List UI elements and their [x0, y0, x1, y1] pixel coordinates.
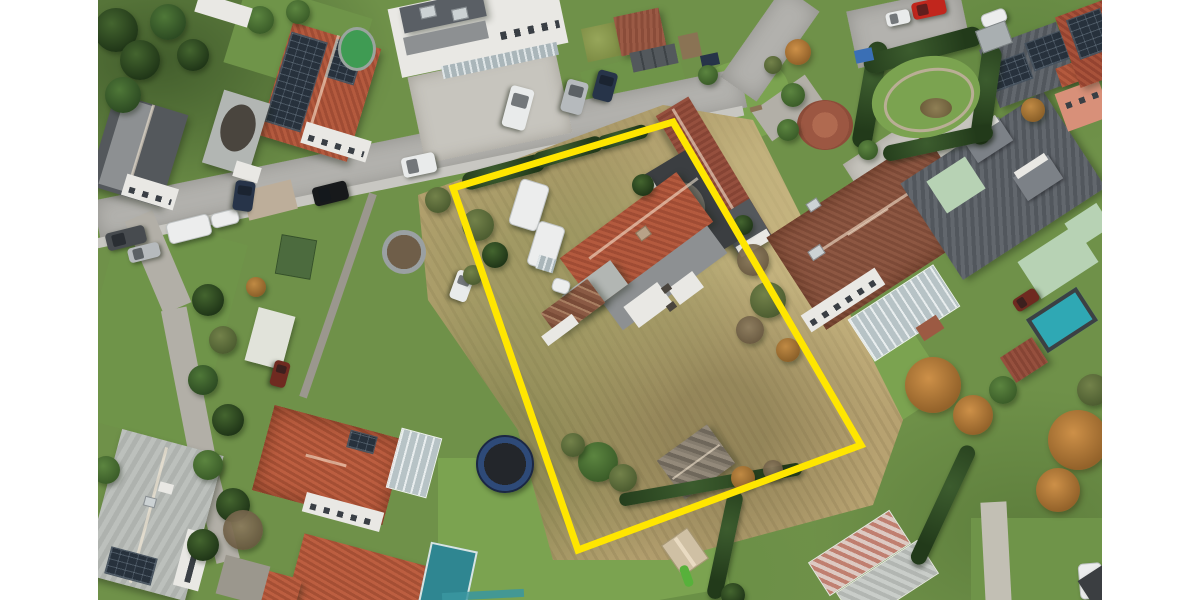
tree-bottom-dark	[721, 583, 745, 600]
path-bottom-right	[980, 501, 1011, 600]
bush-plot-corner-1	[462, 209, 494, 241]
hedge-garden-mound	[920, 98, 952, 118]
bush-orange-east	[776, 338, 800, 362]
tree-tl-3	[150, 4, 186, 40]
bush-outside-corner	[425, 187, 451, 213]
boundary-wall-west	[299, 192, 377, 398]
brick-circle-patio	[797, 100, 853, 150]
screenshot	[0, 0, 1200, 600]
bush-bench-garden-3	[777, 119, 799, 141]
bush-right-3	[989, 376, 1017, 404]
bush-orange-south	[731, 466, 755, 490]
shed-wood-top	[678, 32, 703, 60]
right-margin	[1102, 0, 1200, 600]
round-pool-left	[382, 230, 426, 274]
bush-left-2	[209, 326, 237, 354]
bush-plot-inner-top	[632, 174, 654, 196]
bush-top-2	[286, 0, 310, 24]
trampoline	[476, 435, 534, 493]
car-darkblue-left	[232, 180, 256, 212]
tree-left-4	[212, 404, 244, 436]
left-margin	[0, 0, 98, 600]
tree-east-5	[733, 215, 753, 235]
bottom-gravel-patch	[216, 555, 271, 600]
autumn-tree-right-4	[1048, 410, 1102, 470]
autumn-tree-right-2	[953, 395, 993, 435]
bush-plot-south-3	[561, 433, 585, 457]
bush-east-2	[750, 282, 786, 318]
tree-bare-east-3	[736, 316, 764, 344]
bush-orange-topright	[1021, 98, 1045, 122]
bush-plot-corner-2	[482, 242, 508, 268]
bottom-red-roof-big	[286, 533, 430, 600]
tree-left-7	[187, 529, 219, 561]
tree-left-1	[192, 284, 224, 316]
bush-plot-south-2	[609, 464, 637, 492]
autumn-tree-right-1	[905, 357, 961, 413]
conifer-tl-4	[177, 39, 209, 71]
carport-white-left	[245, 307, 296, 370]
conifer-tl-2	[120, 40, 160, 80]
bush-right-6	[1077, 374, 1102, 406]
bush-green-topright	[858, 140, 878, 160]
autumn-tree-right-5	[1036, 468, 1080, 512]
tree-left-3	[188, 365, 218, 395]
bush-plot-corner-3	[463, 265, 483, 285]
green-shed-left	[276, 235, 316, 278]
autumn-tree-topright-2	[785, 39, 811, 65]
tree-bare-south	[763, 460, 783, 480]
aerial-photo	[98, 0, 1102, 600]
bush-hedge-garden	[781, 83, 805, 107]
tree-bare-east-1	[737, 244, 769, 276]
bush-bench-garden-1	[698, 65, 718, 85]
tree-bare-left	[223, 510, 263, 550]
bush-orange-left	[246, 277, 266, 297]
tree-tl-5	[105, 77, 141, 113]
garden-pool-green	[338, 27, 376, 71]
bush-left-5	[193, 450, 223, 480]
scene-layer	[98, 0, 1102, 600]
bush-bench-garden-2	[764, 56, 782, 74]
hedge-right-gardens	[908, 443, 977, 568]
